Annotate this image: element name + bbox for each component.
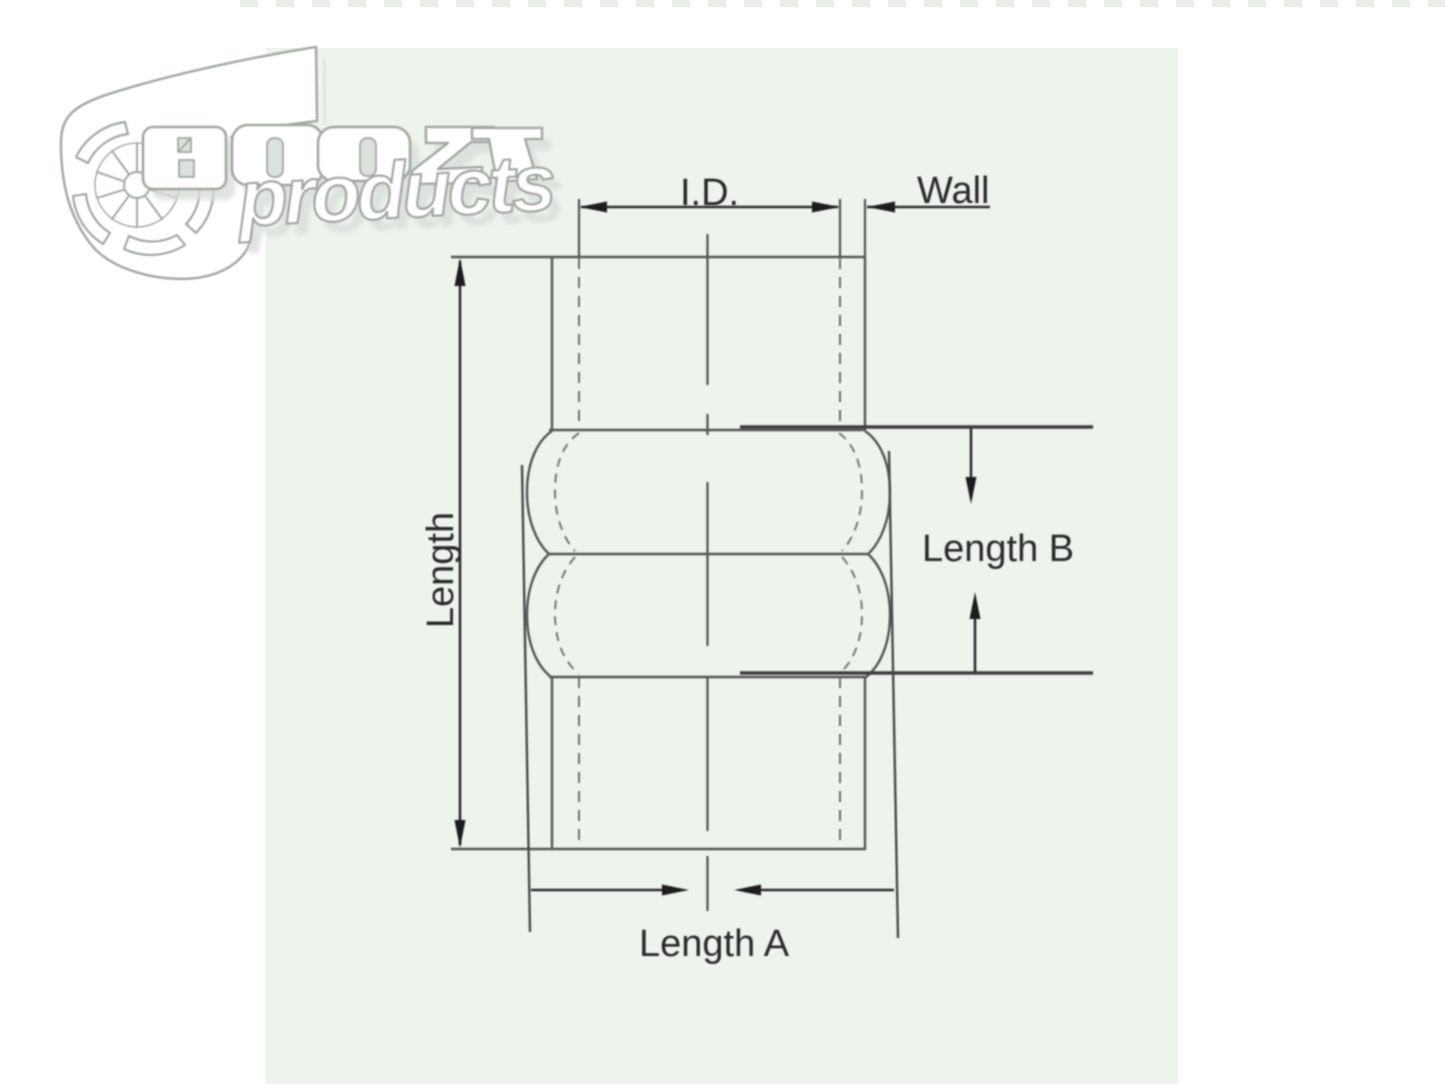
svg-text:Length B: Length B <box>922 528 1074 570</box>
svg-text:products: products <box>234 138 555 243</box>
svg-text:I.D.: I.D. <box>680 172 739 214</box>
svg-text:Wall: Wall <box>917 170 989 212</box>
svg-text:Length: Length <box>420 512 462 628</box>
svg-text:Length A: Length A <box>639 923 790 965</box>
